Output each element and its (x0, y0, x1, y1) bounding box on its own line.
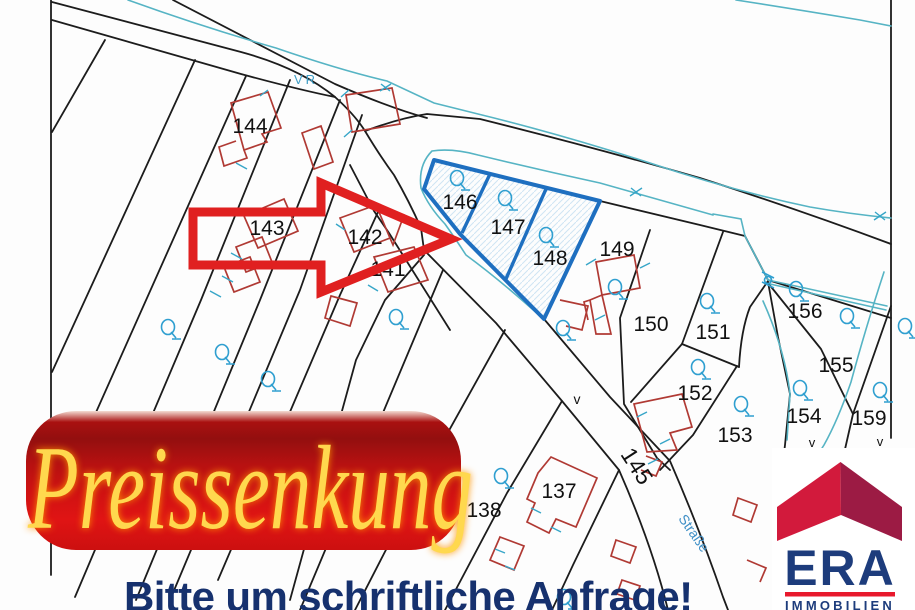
svg-text:142: 142 (347, 226, 382, 249)
svg-text:154: 154 (786, 405, 821, 428)
svg-text:v: v (574, 391, 581, 407)
svg-text:149: 149 (599, 238, 634, 261)
svg-text:147: 147 (490, 216, 525, 239)
svg-text:150: 150 (633, 313, 668, 336)
svg-text:143: 143 (249, 217, 284, 240)
svg-text:VR: VR (294, 72, 318, 87)
svg-text:155: 155 (818, 354, 853, 377)
svg-text:v: v (877, 434, 884, 449)
svg-text:153: 153 (717, 424, 752, 447)
svg-text:144: 144 (232, 115, 267, 138)
svg-text:151: 151 (695, 321, 730, 344)
svg-text:156: 156 (787, 300, 822, 323)
svg-text:IMMOBILIEN: IMMOBILIEN (785, 598, 895, 610)
svg-text:148: 148 (532, 247, 567, 270)
svg-text:159: 159 (851, 407, 886, 430)
svg-text:152: 152 (677, 382, 712, 405)
svg-text:Preissenkung: Preissenkung (27, 421, 473, 554)
svg-text:ERA: ERA (784, 540, 896, 596)
svg-text:146: 146 (442, 191, 477, 214)
